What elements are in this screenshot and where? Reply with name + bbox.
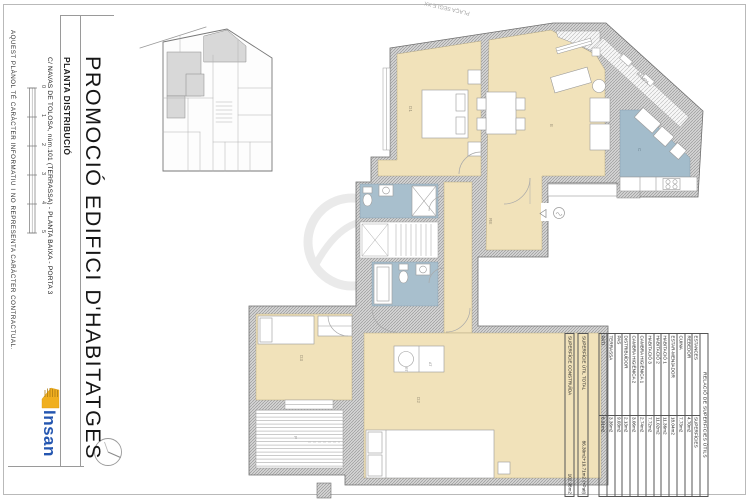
kitchen-counter [620,177,697,191]
titleblock-divider [60,15,61,466]
room-name: DISTRIBUÏDOR [622,334,630,416]
areas-table-row: CUINA7.73m2 [676,334,684,497]
room-label-hall: RE [488,218,493,224]
room-area: 11.36m2 [661,415,669,497]
room-label-living: E [549,124,554,127]
areas-table-title-row: RELACIÓ DE SUPERFÍCIES ÚTILS [700,334,708,497]
room-area: 8.91m2 [599,415,607,497]
areas-table-block: RELACIÓ DE SUPERFÍCIES ÚTILS ESTANCES SU… [563,333,708,497]
room-area: 7.72m2 [645,415,653,497]
room-name: CUINA [676,334,684,416]
room-area: 9.03m2 [614,415,622,497]
total-value: 86.30m2+19.71m2 (+Pati) [580,441,585,494]
toilet-tank [363,187,372,193]
areas-table-title: RELACIÓ DE SUPERFÍCIES ÚTILS [700,334,708,497]
insan-logo-icon [42,388,59,408]
titleblock-rule-top [60,15,114,16]
chair [477,118,486,130]
side-table [593,80,606,93]
areas-table-row: PAS9.03m2 [614,334,622,497]
scale-tick-label: 1 [40,114,46,117]
room-area: 3.06m2 [630,415,638,497]
areas-table-col-areas: SUPERFÍCIES [692,415,700,497]
toilet [363,194,372,206]
room-name: HABITACIÓ 2 [653,334,661,416]
chair [516,98,525,110]
key-plan [140,27,272,171]
armchair [590,98,610,122]
street-label: PLAÇA SEGLE XX [424,0,471,16]
room-area: 2.74m2 [637,415,645,497]
scale-tick-label: 5 [40,230,46,233]
areas-table-row: DISTRIBUÏDOR2.13m2 [622,334,630,497]
total-useful-area: SUPERFÍCIE ÚTIL TOTAL 86.30m2+19.71m2 (+… [577,333,588,497]
nightstand [498,462,510,474]
sheet-subtitle: PLANTA DISTRIBUCIÓ [62,57,72,155]
total-label: SUPERFÍCIE CONSTRUÏDA [567,336,572,395]
areas-table-row: CAMBRA HIGIÈNICA 12.74m2 [637,334,645,497]
scale-tick-label: 4 [40,201,46,204]
plan-sheet: D1 E C D2 D3 P RE RT AT PLAÇA SEGLE XX R… [0,0,750,500]
bedroom-2-furniture [366,430,510,478]
total-label: SUPERFÍCIE ÚTIL TOTAL [580,336,585,390]
room-area: 7.73m2 [676,415,684,497]
corridor-floor [444,182,472,333]
scale-tick-label: 2 [40,143,46,146]
areas-table-row: CAMBRA HIGIÈNICA 23.06m2 [630,334,638,497]
scale-tick-label: 3 [40,172,46,175]
chair [516,118,525,130]
insan-logo-text: Insan [39,410,59,457]
bed-2 [366,430,494,478]
sink-unit [416,264,430,275]
sink-unit [379,185,393,196]
room-name: HABITACIÓ 3 [645,334,653,416]
areas-totals: SUPERFÍCIE ÚTIL TOTAL 86.30m2+19.71m2 (+… [564,333,588,497]
room-label-bedroom-3: D3 [299,355,304,361]
armchair [590,124,610,150]
room-name: HABITACIÓ 1 [661,334,669,416]
wall-stub [317,483,331,498]
meter-circle-icon [554,208,565,219]
nightstand [468,70,481,84]
areas-table-row: PATI8.91m2 [599,334,607,497]
areas-table-row: TERRASSA3.36m2 [606,334,614,497]
room-name: REBEDOR [684,334,692,416]
areas-table-col-rooms: ESTANCES [692,334,700,416]
total-value: 102.98m2 [567,474,572,494]
room-label-bedroom-1: D1 [408,106,413,112]
titleblock-rule-bottom [8,466,84,467]
sheet-address: C/ NAVAS DE TOLOSA, núm.101 (TERRASSA) -… [46,57,53,294]
room-name: CAMBRA HIGIÈNICA 1 [637,334,645,416]
dining-table [486,92,516,134]
room-name: TERRASSA [606,334,614,416]
room-area: 4.70m2 [684,415,692,497]
areas-table-row: HABITACIÓ 111.36m2 [661,334,669,497]
patio-deck [256,410,343,468]
exterior-gallery [548,184,617,196]
areas-table-row: ESTAR-MENJADOR18.04m2 [669,334,677,497]
sheet-disclaimer: AQUEST PLÀNOL TÉ CARÀCTER INFORMATIU I N… [9,30,16,350]
nightstand [468,142,481,156]
room-name: PAS [614,334,622,416]
areas-table-row: REBEDOR4.70m2 [684,334,692,497]
areas-table: RELACIÓ DE SUPERFÍCIES ÚTILS ESTANCES SU… [598,333,708,497]
room-area: 2.13m2 [622,415,630,497]
room-name: ESTAR-MENJADOR [669,334,677,416]
room-area: 3.36m2 [606,415,614,497]
scale-tick-label: 0 [40,85,46,88]
areas-table-row: HABITACIÓ 37.72m2 [645,334,653,497]
total-built-area: SUPERFÍCIE CONSTRUÏDA 102.98m2 [564,333,575,497]
room-label-bedroom-2: D2 [416,397,421,403]
room-label-patio: P [293,436,298,439]
sheet-title: PROMOCIÓ EDIFICI D'HABITATGES [80,56,105,460]
chair [477,98,486,110]
laundry-closet [394,346,444,372]
room-area: 11.02m2 [653,415,661,497]
laundry-label-left: RT [404,367,408,373]
areas-table-body: REBEDOR4.70m2CUINA7.73m2ESTAR-MENJADOR18… [599,334,692,497]
room-name: PATI [599,334,607,416]
room-name: CAMBRA HIGIÈNICA 2 [630,334,638,416]
areas-table-header-row: ESTANCES SUPERFÍCIES [692,334,700,497]
areas-table-row: HABITACIÓ 211.02m2 [653,334,661,497]
stove [663,179,680,190]
room-area: 18.04m2 [669,415,677,497]
toilet [399,271,408,283]
scale-bar [27,88,37,233]
